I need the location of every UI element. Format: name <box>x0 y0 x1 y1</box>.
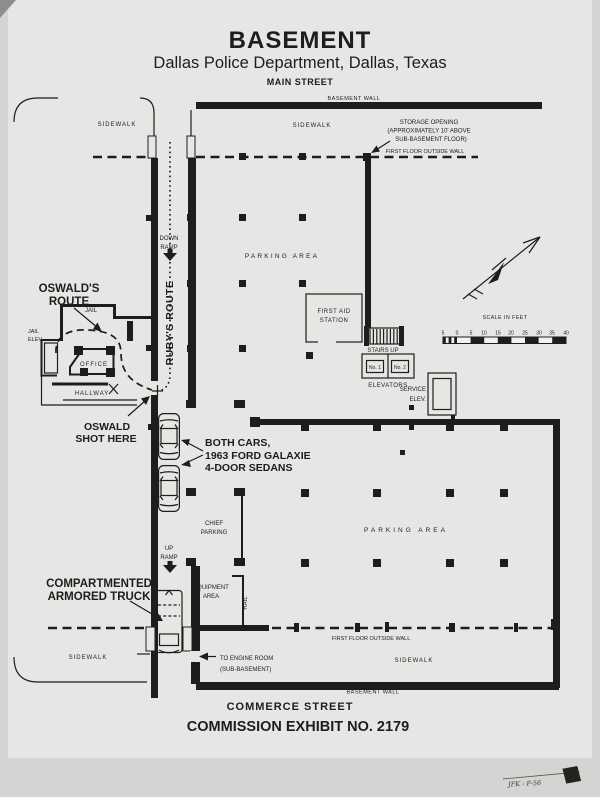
pillar <box>301 489 309 497</box>
pillar <box>148 424 154 430</box>
scanned-floor-plan-photo: BASEMENT Dallas Police Department, Dalla… <box>0 0 600 797</box>
scale-tick: 40 <box>563 331 569 337</box>
sidewalk-sw-label: SIDEWALK <box>69 655 108 661</box>
pillar <box>239 345 246 352</box>
oswalds-route-label-1: OSWALD'S <box>39 283 100 295</box>
pillar <box>301 559 309 567</box>
pillar <box>500 424 508 431</box>
scale-tick: 15 <box>495 331 501 337</box>
pillar <box>146 345 152 351</box>
pillar <box>187 280 194 287</box>
main-street-label: MAIN STREET <box>267 77 334 87</box>
pillar <box>294 623 299 632</box>
up-ramp-label-2: RAMP <box>160 555 177 561</box>
sidewalk-ne-label: SIDEWALK <box>293 123 332 129</box>
armored-truck-label-1: COMPARTMENTED <box>46 578 152 590</box>
first-aid-label-1: FIRST AID <box>317 309 350 315</box>
sidewalk-nw-label: SIDEWALK <box>98 122 137 128</box>
stairs-up-label: STAIRS UP <box>367 348 398 354</box>
pillar <box>449 623 455 632</box>
plan-title: BASEMENT <box>229 27 372 54</box>
basement-wall-top-label: BASEMENT WALL <box>328 96 381 102</box>
up-ramp-label-1: UP <box>165 546 173 552</box>
both-cars-label-2: 1963 FORD GALAXIE <box>205 450 311 462</box>
chief-parking-label-1: CHIEF <box>205 521 223 527</box>
office-label: OFFICE <box>80 362 108 368</box>
pillar <box>299 214 306 221</box>
pillar <box>373 424 381 431</box>
both-cars-label-1: BOTH CARS, <box>205 437 270 449</box>
scale-tick: 20 <box>508 331 514 337</box>
service-elev-label-2: ELEV. <box>410 397 427 403</box>
pillar <box>239 214 246 221</box>
jail-label: JAIL <box>85 308 98 314</box>
east-wall-upper <box>365 157 371 328</box>
storage-opening-label-3: SUB-BASEMENT FLOOR) <box>395 137 467 143</box>
basement-wall-bottom-label: BASEMENT WALL <box>347 690 400 696</box>
scale-title: SCALE IN FEET <box>483 315 528 321</box>
service-elev-label-1: SERVICE <box>400 387 426 393</box>
basement-wall-top <box>196 102 542 109</box>
equipment-south-wall <box>193 625 269 631</box>
sidewalk-se-label: SIDEWALK <box>395 658 434 664</box>
parking-area-lower-label: PARKING AREA <box>364 527 448 534</box>
pillar <box>500 559 508 567</box>
storage-opening-label-1: STORAGE OPENING <box>400 120 459 126</box>
pillar <box>363 153 371 161</box>
pillar <box>409 405 414 410</box>
plan-subtitle: Dallas Police Department, Dallas, Texas <box>153 54 446 72</box>
pillar <box>355 623 360 632</box>
paper <box>8 0 592 758</box>
scale-tick: 10 <box>481 331 487 337</box>
scale-tick: 5 <box>442 331 445 337</box>
pillar <box>409 425 414 430</box>
pillar <box>446 559 454 567</box>
pillar <box>299 280 306 287</box>
pillar <box>187 345 194 352</box>
scale-tick: 30 <box>536 331 542 337</box>
elevator-no2-label: No. 2 <box>394 365 406 371</box>
pillar <box>500 489 508 497</box>
first-floor-wall-top-label: FIRST FLOOR OUTSIDE WALL <box>386 149 465 155</box>
pillar <box>373 559 381 567</box>
pillar <box>146 215 152 221</box>
first-aid-label-2: STATION <box>320 318 349 324</box>
commerce-street-label: COMMERCE STREET <box>227 701 354 713</box>
east-wall-lower <box>553 419 560 688</box>
lower-parking-north-wall <box>250 419 555 425</box>
scale-tick: 25 <box>522 331 528 337</box>
scale-tick: 5 <box>470 331 473 337</box>
chief-parking-label-2: PARKING <box>201 530 228 536</box>
oswalds-route-label-2: ROUTE <box>49 296 90 308</box>
oswald-shot-label-2: SHOT HERE <box>75 433 136 445</box>
jail-elev-label-2: ELEV. <box>28 337 44 343</box>
pillar <box>187 214 194 221</box>
pillar <box>306 352 313 359</box>
pillar <box>373 489 381 497</box>
armored-truck-label-2: ARMORED TRUCK <box>48 591 152 603</box>
pillar <box>514 623 518 632</box>
storage-opening-label-2: (APPROXIMATELY 10' ABOVE <box>387 129 470 135</box>
elevator-no1-label: No. 1 <box>369 365 381 371</box>
first-floor-wall-bottom-label: FIRST FLOOR OUTSIDE WALL <box>332 636 411 642</box>
down-ramp-label-2: RAMP <box>160 245 177 251</box>
engine-room-label-2: (SUB-BASEMENT) <box>220 667 271 673</box>
pillar <box>299 153 306 160</box>
down-ramp-label-1: DOWN <box>160 236 179 242</box>
pillar <box>446 489 454 497</box>
hallway-label: HALLWAY <box>75 391 110 397</box>
rail-label: RAIL <box>243 596 249 610</box>
parking-area-upper-label: PARKING AREA <box>245 253 319 260</box>
pillar <box>385 622 389 632</box>
exhibit-caption: COMMISSION EXHIBIT NO. 2179 <box>187 719 409 735</box>
pillar <box>551 619 560 630</box>
pillar <box>301 424 309 431</box>
equipment-area-label-1: EQUIPMENT <box>193 585 229 591</box>
oswald-shot-label-1: OSWALD <box>84 421 130 433</box>
pillar <box>239 280 246 287</box>
engine-room-label-1: TO ENGINE ROOM <box>220 656 273 662</box>
jail-elev-label-1: JAIL <box>28 329 39 335</box>
equipment-area-label-2: AREA <box>203 594 219 600</box>
rubys-route-label: RUBY'S ROUTE <box>164 281 176 366</box>
pillar <box>446 424 454 431</box>
both-cars-label-3: 4-DOOR SEDANS <box>205 462 293 474</box>
scale-tick: 35 <box>549 331 555 337</box>
scale-tick: 0 <box>456 331 459 337</box>
pillar <box>400 450 405 455</box>
pillar <box>239 153 246 160</box>
